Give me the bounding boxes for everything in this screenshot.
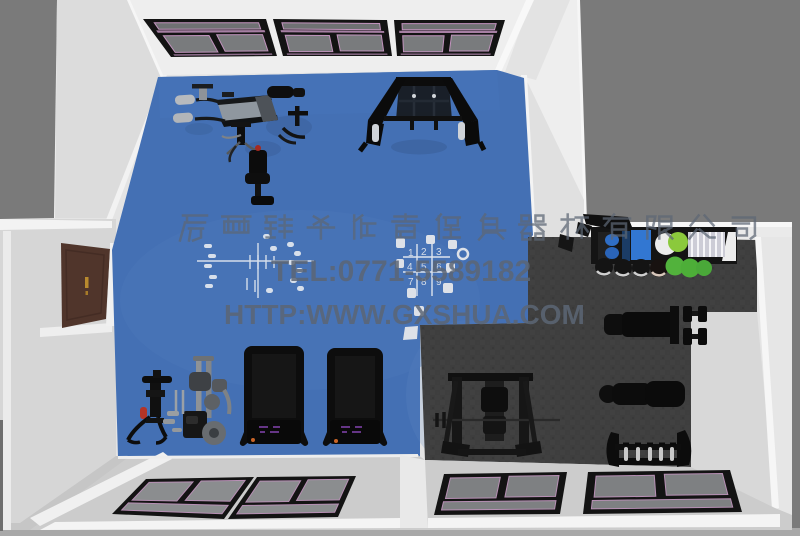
svg-text:HTTP:WWW.GXSHUA.COM: HTTP:WWW.GXSHUA.COM <box>224 299 585 330</box>
svg-text:TEL:0771-5589182: TEL:0771-5589182 <box>271 255 531 288</box>
